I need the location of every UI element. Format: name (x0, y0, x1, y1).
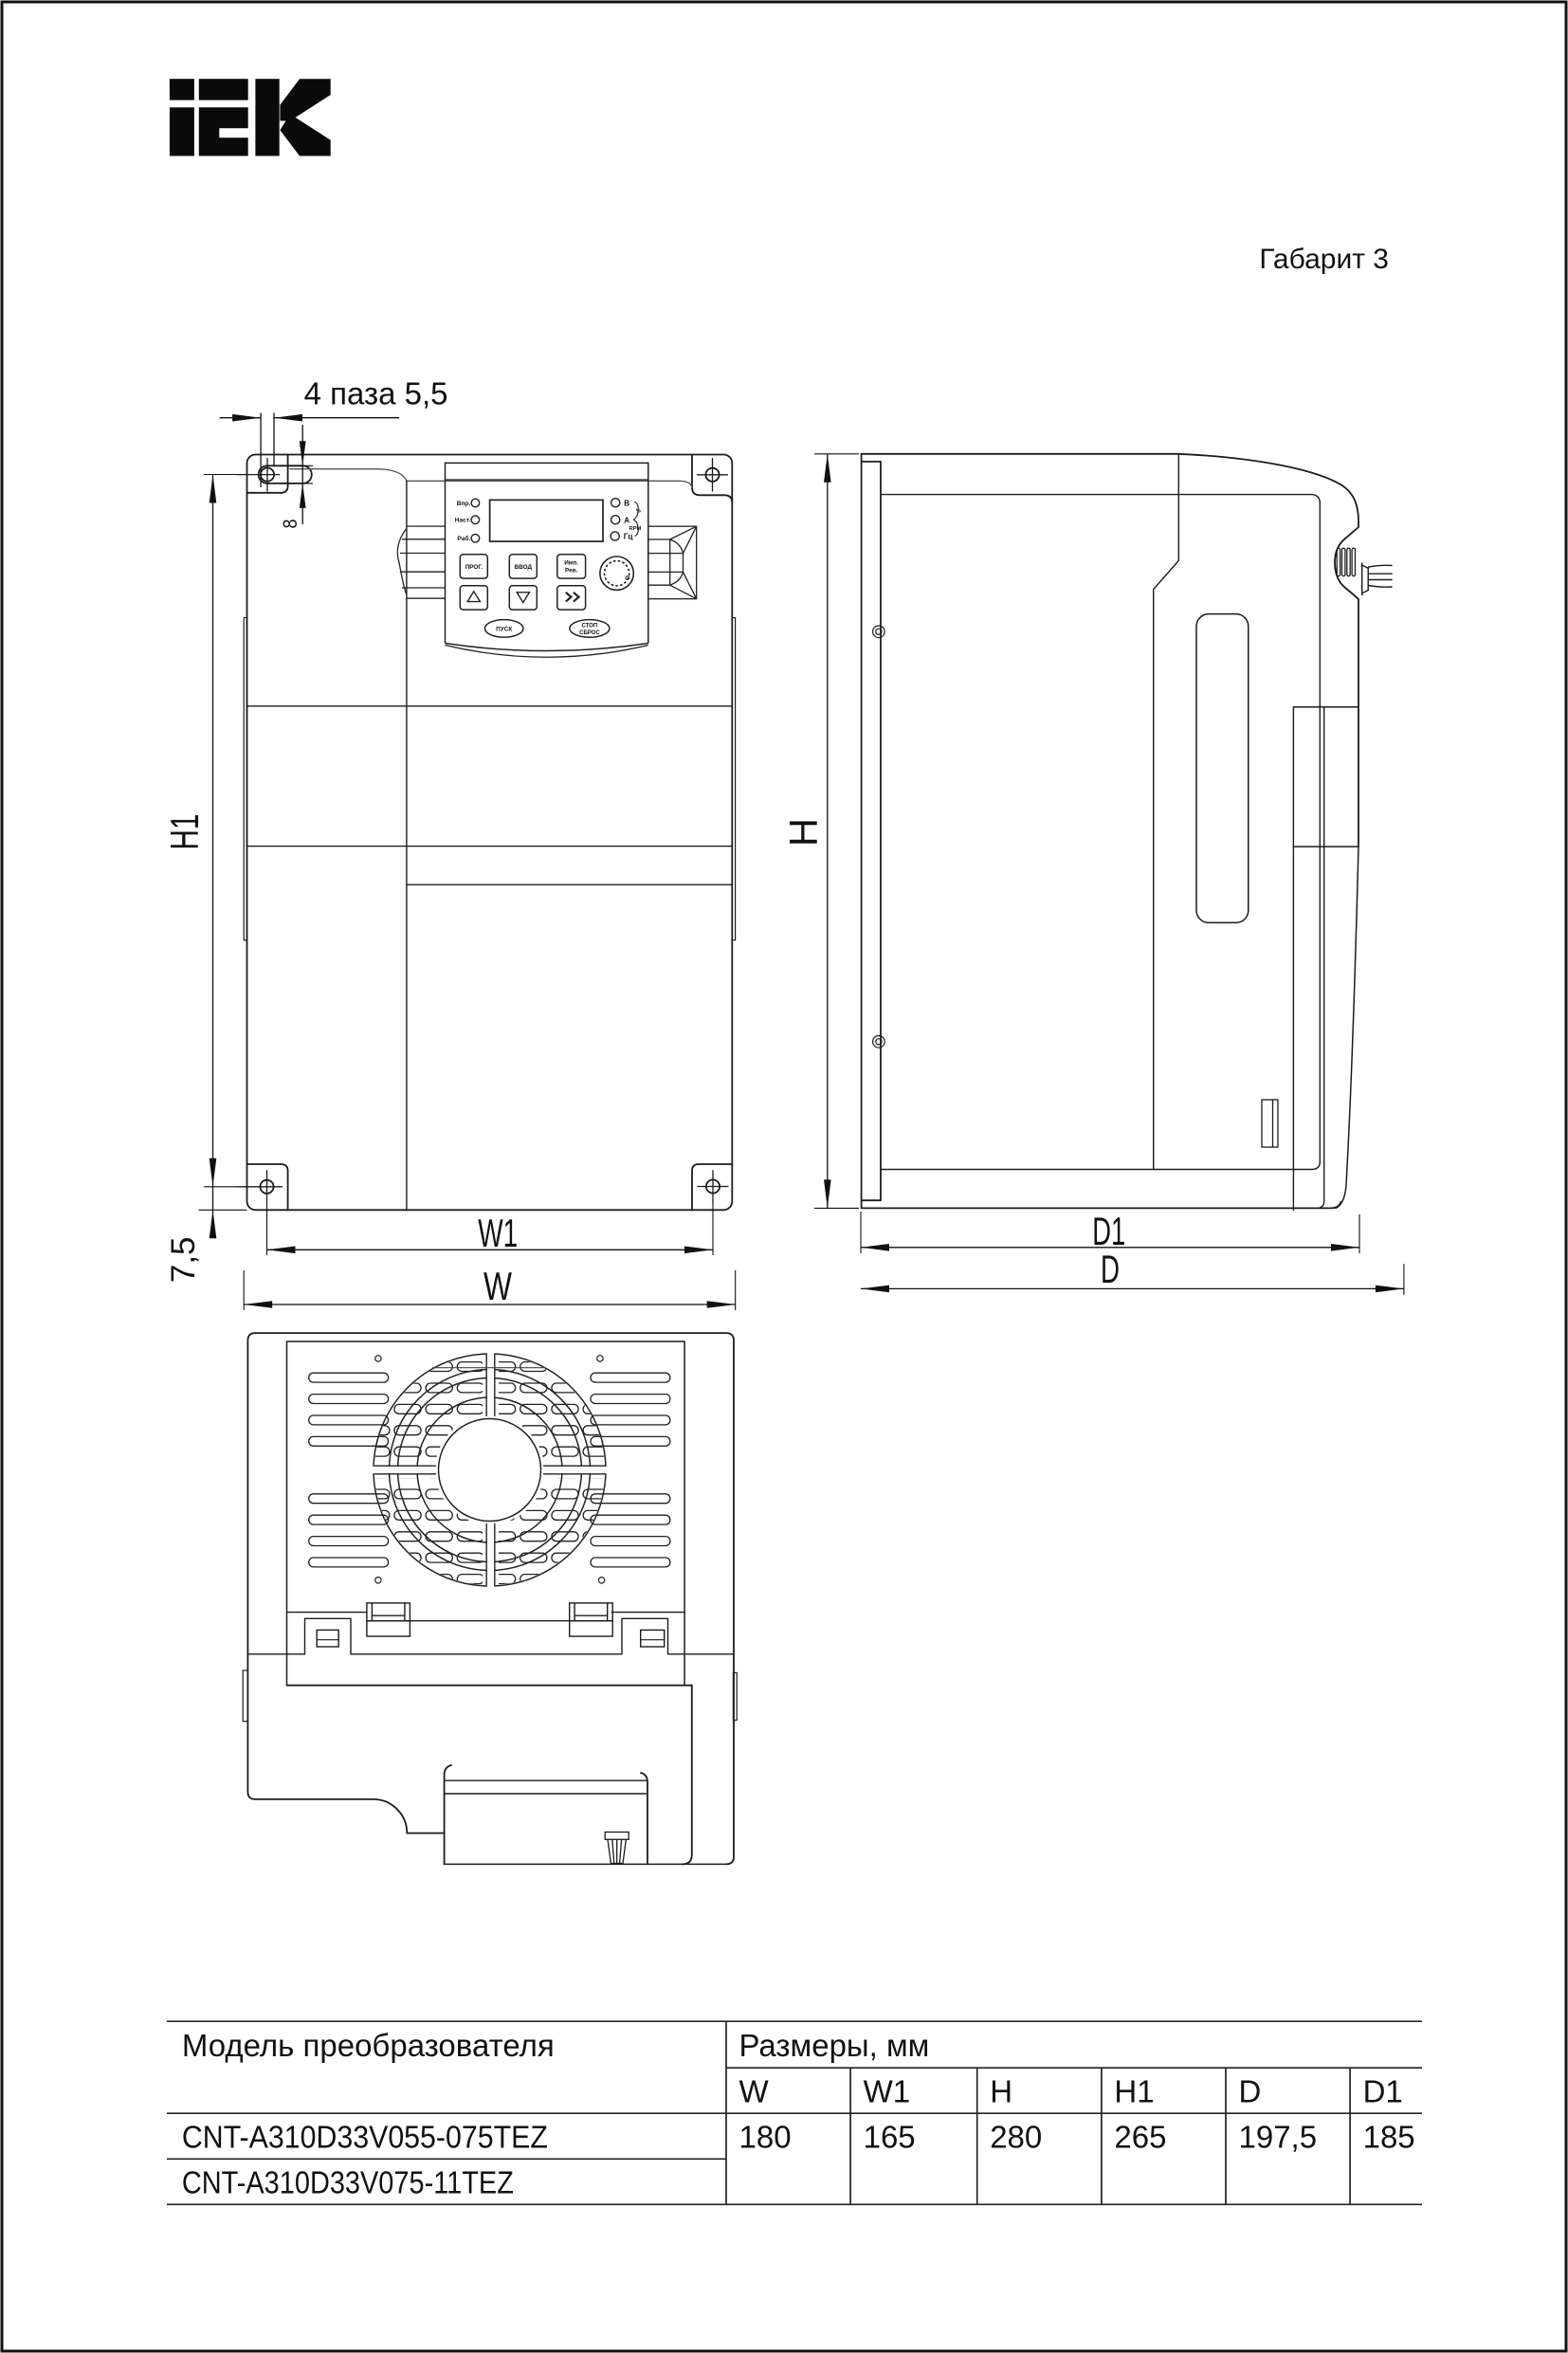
svg-text:CNT-A310D33V075-11TEZ: CNT-A310D33V075-11TEZ (182, 2165, 514, 2200)
svg-text:180: 180 (739, 2119, 792, 2154)
svg-text:Гц: Гц (624, 533, 633, 541)
svg-text:Впр.: Впр. (457, 501, 471, 507)
svg-text:ВВОД: ВВОД (515, 564, 533, 571)
svg-text:Имп.: Имп. (564, 560, 578, 567)
svg-text:D: D (1101, 1247, 1120, 1291)
svg-text:D: D (1239, 2073, 1262, 2108)
svg-text:Раб.: Раб. (457, 535, 470, 542)
svg-text:D1: D1 (1363, 2073, 1403, 2108)
svg-text:CNT-A310D33V055-075TEZ: CNT-A310D33V055-075TEZ (182, 2119, 548, 2154)
svg-text:А: А (624, 516, 629, 524)
svg-text:4 паза 5,5: 4 паза 5,5 (304, 376, 448, 411)
svg-text:H1: H1 (162, 814, 207, 850)
svg-text:В: В (624, 499, 629, 507)
svg-text:ПРОГ.: ПРОГ. (465, 564, 483, 571)
svg-text:H1: H1 (1114, 2073, 1154, 2108)
svg-text:8: 8 (280, 520, 301, 529)
svg-text:H: H (781, 818, 826, 847)
svg-text:165: 165 (864, 2119, 916, 2154)
svg-text:W: W (483, 1264, 512, 1308)
svg-text:СТОП: СТОП (582, 624, 598, 629)
svg-text:H: H (990, 2073, 1012, 2108)
svg-text:Рев.: Рев. (565, 568, 578, 575)
svg-text:Наст.: Наст. (455, 518, 471, 524)
svg-text:RPM: RPM (629, 526, 642, 532)
svg-text:W: W (739, 2073, 770, 2108)
svg-text:7,5: 7,5 (165, 1236, 202, 1283)
svg-text:Модель преобразователя: Модель преобразователя (182, 2028, 555, 2063)
svg-text:Габарит 3: Габарит 3 (1259, 244, 1389, 275)
svg-text:СБРОС: СБРОС (579, 630, 600, 636)
svg-text:W1: W1 (478, 1211, 518, 1255)
svg-text:280: 280 (990, 2119, 1042, 2154)
svg-text:W1: W1 (864, 2073, 911, 2108)
svg-text:Размеры, мм: Размеры, мм (739, 2028, 930, 2063)
svg-text:265: 265 (1114, 2119, 1166, 2154)
svg-text:197,5: 197,5 (1239, 2119, 1318, 2154)
svg-text:185: 185 (1363, 2119, 1415, 2154)
svg-text:ПУСК: ПУСК (496, 626, 512, 632)
